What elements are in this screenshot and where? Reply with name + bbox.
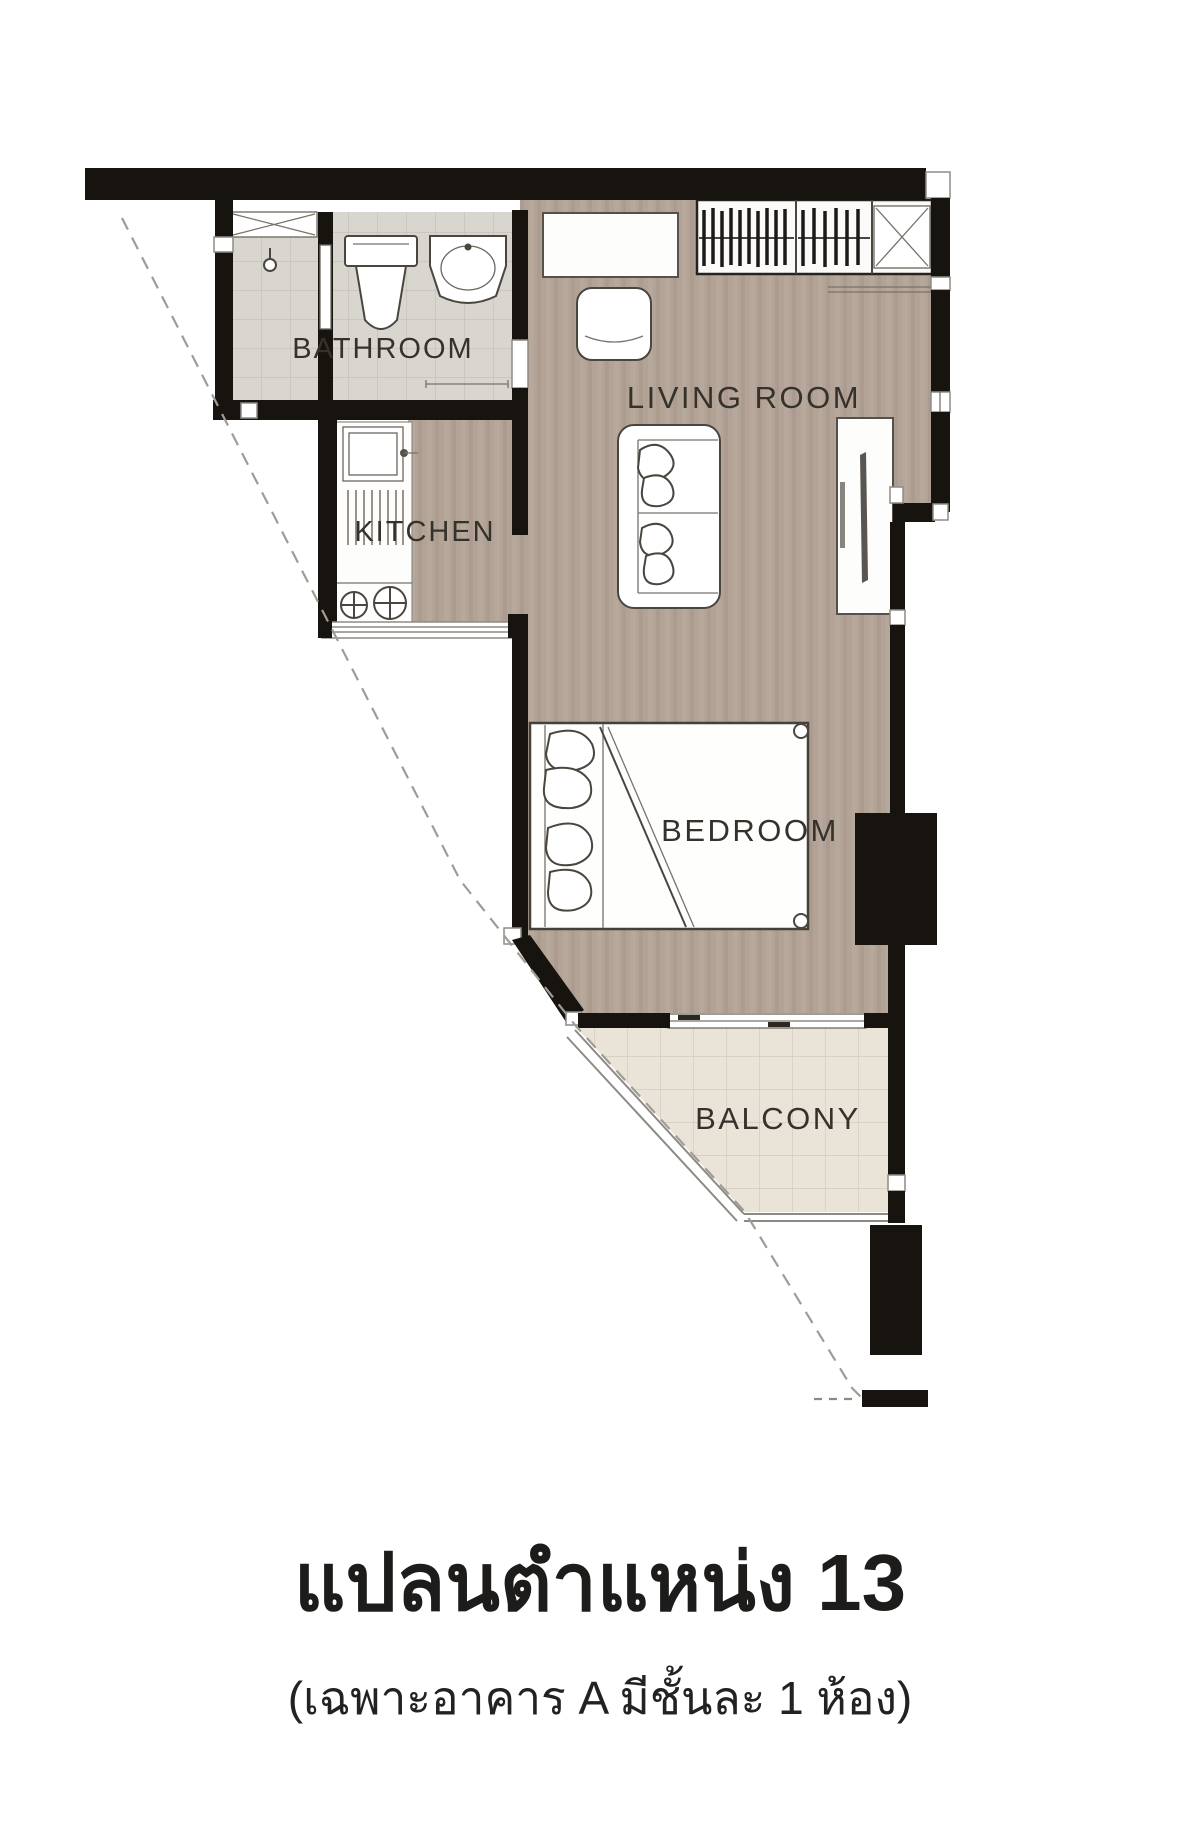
wash-basin bbox=[430, 236, 506, 303]
bathroom-label: BATHROOM bbox=[292, 333, 473, 365]
top-wall bbox=[85, 168, 926, 200]
bedroom-label: BEDROOM bbox=[661, 813, 839, 848]
media-device bbox=[840, 482, 845, 548]
chair bbox=[577, 288, 651, 360]
bathroom-door bbox=[512, 340, 528, 388]
shower-door-panel bbox=[320, 245, 331, 329]
wardrobe-cross-box bbox=[874, 206, 930, 268]
floor-plan-page: BATHROOM KITCHEN LIVING ROOM BEDROOM BAL… bbox=[0, 0, 1200, 1843]
corner-notch bbox=[926, 172, 950, 198]
door-handle bbox=[768, 1022, 790, 1027]
living-room-label: LIVING ROOM bbox=[627, 380, 861, 415]
sofa bbox=[618, 425, 720, 608]
shelf-cross-box bbox=[231, 212, 317, 237]
plan-title: แปลนตำแหน่ง 13 bbox=[294, 1538, 906, 1627]
structural-column bbox=[870, 1225, 922, 1355]
boundary-wall-stub bbox=[862, 1390, 928, 1407]
door-handle bbox=[678, 1015, 700, 1020]
floor-plan: BATHROOM KITCHEN LIVING ROOM BEDROOM BAL… bbox=[0, 0, 1200, 1843]
plan-subtitle: (เฉพาะอาคาร A มีชั้นละ 1 ห้อง) bbox=[288, 1665, 912, 1724]
desk bbox=[543, 213, 678, 277]
window bbox=[931, 392, 950, 412]
shaft-column bbox=[855, 813, 937, 945]
kitchen-label: KITCHEN bbox=[354, 516, 495, 548]
balcony-label: BALCONY bbox=[695, 1101, 861, 1136]
sliding-door bbox=[668, 1014, 866, 1028]
tv-console bbox=[837, 418, 893, 614]
caption-block: แปลนตำแหน่ง 13 (เฉพาะอาคาร A มีชั้นละ 1 … bbox=[288, 1538, 912, 1724]
